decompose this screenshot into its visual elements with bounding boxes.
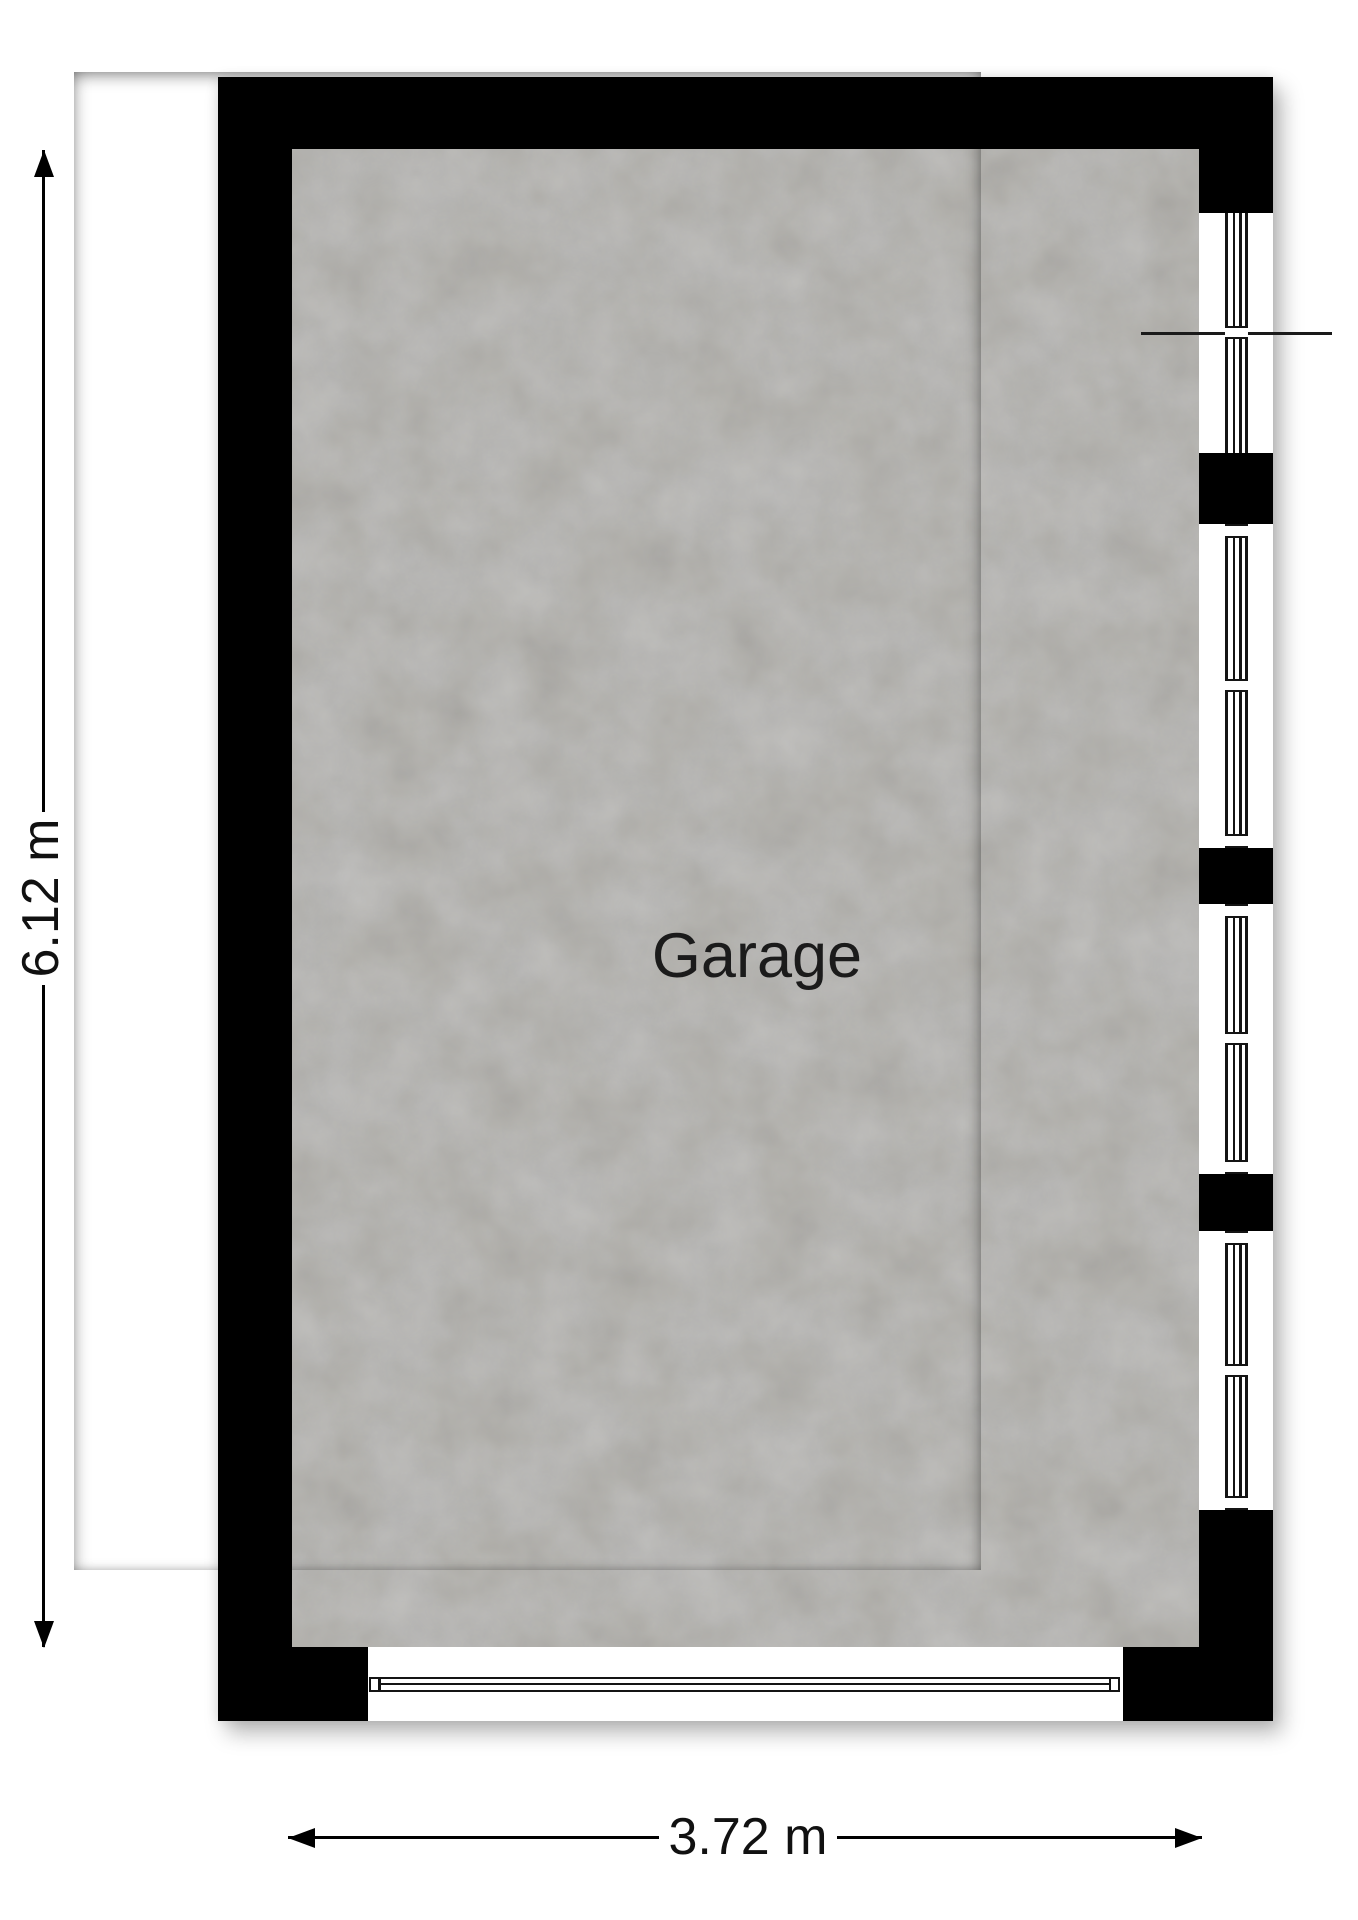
arrow-right-icon bbox=[1175, 1828, 1202, 1848]
garage-door-opening bbox=[368, 1647, 1123, 1721]
vertical-dimension-line bbox=[42, 985, 45, 1647]
arrow-down-icon bbox=[34, 1621, 54, 1648]
window bbox=[1199, 524, 1273, 848]
window-frame-cap bbox=[1225, 524, 1248, 538]
garage-floor bbox=[292, 149, 1199, 1647]
building-walls bbox=[218, 77, 1273, 1721]
door-jamb bbox=[1109, 1677, 1120, 1692]
vertical-dimension-label: 6.12 m bbox=[11, 819, 71, 978]
room-label: Garage bbox=[652, 920, 862, 992]
vertical-dimension-line bbox=[42, 150, 45, 812]
window-mullion bbox=[1225, 679, 1248, 692]
window-frame-cap bbox=[1225, 1160, 1248, 1174]
arrow-up-icon bbox=[34, 150, 54, 177]
window bbox=[1199, 904, 1273, 1174]
window-frame-cap bbox=[1225, 904, 1248, 918]
window-frame-cap bbox=[1225, 1231, 1248, 1245]
horizontal-dimension-line bbox=[288, 1836, 659, 1839]
garage-door-leaf bbox=[379, 1677, 1113, 1692]
window-mullion bbox=[1225, 1364, 1248, 1377]
window-frame-cap bbox=[1225, 834, 1248, 848]
window-frame-cap bbox=[1225, 1496, 1248, 1510]
window-mullion bbox=[1225, 1032, 1248, 1045]
concrete-texture bbox=[292, 149, 1199, 1647]
floorplan-canvas: Garage 6.12 m 3.72 m bbox=[0, 0, 1358, 1920]
door-leaf-line bbox=[381, 1683, 1111, 1686]
horizontal-dimension-label: 3.72 m bbox=[669, 1807, 828, 1867]
window-mullion bbox=[1225, 326, 1248, 339]
horizontal-dimension-line bbox=[837, 1836, 1202, 1839]
arrow-left-icon bbox=[288, 1828, 315, 1848]
window bbox=[1199, 1231, 1273, 1510]
